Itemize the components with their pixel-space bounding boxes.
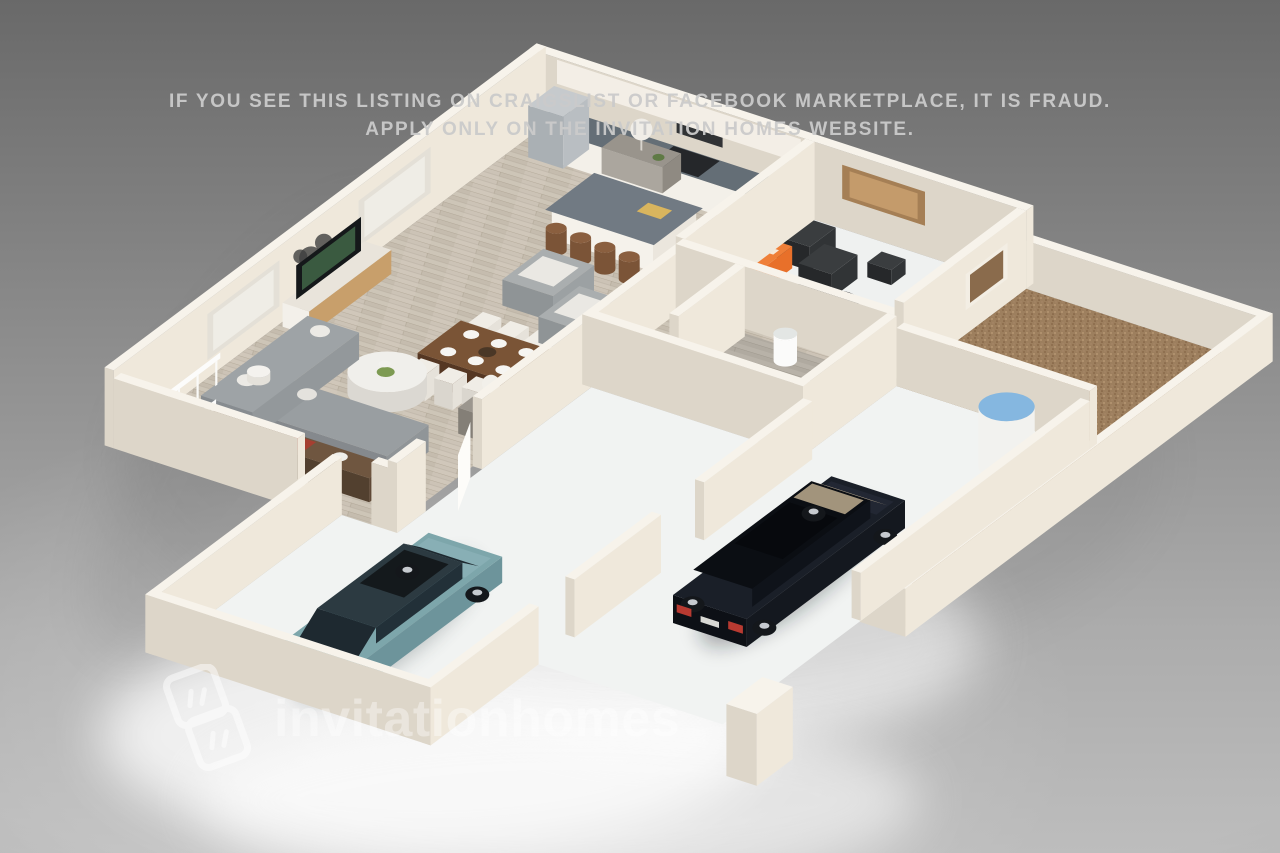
floor-plan-screenshot: IF YOU SEE THIS LISTING ON CRAIGSLIST OR… (0, 0, 1280, 853)
fraud-warning: IF YOU SEE THIS LISTING ON CRAIGSLIST OR… (0, 88, 1280, 144)
fraud-warning-line2: APPLY ONLY ON THE INVITATION HOMES WEBSI… (0, 116, 1280, 144)
fraud-warning-line1: IF YOU SEE THIS LISTING ON CRAIGSLIST OR… (0, 88, 1280, 116)
